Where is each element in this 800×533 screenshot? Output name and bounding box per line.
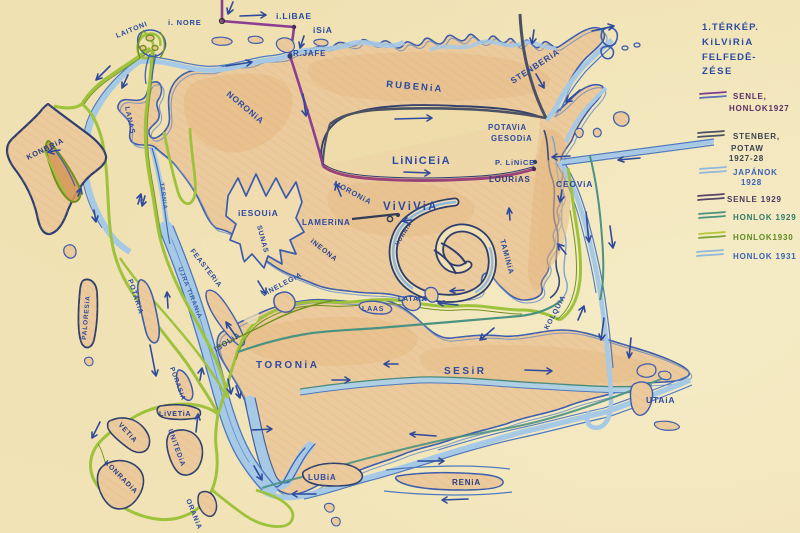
- svg-text:i.LiBAE: i.LiBAE: [276, 11, 312, 21]
- svg-text:SESiR: SESiR: [444, 366, 487, 377]
- svg-text:LATAiA: LATAiA: [398, 296, 427, 303]
- svg-text:ZÉSE: ZÉSE: [702, 66, 733, 77]
- svg-text:R.JAFE: R.JAFE: [293, 49, 326, 58]
- svg-text:POTAW: POTAW: [731, 144, 764, 153]
- svg-text:iESOUiA: iESOUiA: [238, 208, 279, 218]
- svg-text:HONLOK 1931: HONLOK 1931: [733, 252, 796, 261]
- svg-text:iSiA: iSiA: [313, 25, 333, 35]
- svg-text:P. LiNiCE: P. LiNiCE: [495, 158, 535, 167]
- svg-text:UTAiA: UTAiA: [646, 395, 675, 405]
- svg-text:FELFEDĒ-: FELFEDĒ-: [702, 52, 756, 63]
- svg-text:LOURiAS: LOURiAS: [489, 175, 531, 184]
- svg-text:TORONiA: TORONiA: [256, 360, 319, 371]
- svg-text:STENBER,: STENBER,: [733, 132, 780, 141]
- svg-text:1928: 1928: [741, 178, 762, 187]
- svg-text:LAAS: LAAS: [362, 306, 384, 313]
- svg-text:CEOViA: CEOViA: [556, 179, 593, 189]
- svg-text:HONLOK 1929: HONLOK 1929: [733, 213, 796, 222]
- svg-text:KiLViRiA: KiLViRiA: [702, 37, 754, 48]
- svg-text:LiVETiA: LiVETiA: [159, 411, 191, 418]
- svg-text:JAPÁNOK: JAPÁNOK: [733, 168, 778, 177]
- svg-text:HONLOK1930: HONLOK1930: [733, 233, 793, 242]
- svg-text:SENLE 1929: SENLE 1929: [727, 195, 782, 204]
- svg-text:LiNiCEiA: LiNiCEiA: [392, 155, 451, 167]
- svg-text:HONLOK1927: HONLOK1927: [729, 104, 789, 113]
- svg-text:RENiA: RENiA: [452, 478, 481, 487]
- svg-text:LAMERiNA: LAMERiNA: [302, 218, 351, 227]
- svg-text:1927-28: 1927-28: [729, 154, 764, 163]
- svg-text:ViViViA: ViViViA: [383, 201, 439, 213]
- svg-text:i. NORE: i. NORE: [168, 18, 202, 27]
- svg-text:SENLE,: SENLE,: [733, 92, 767, 101]
- svg-text:1.TÉRKÉP.: 1.TÉRKÉP.: [702, 22, 759, 33]
- svg-text:POTAViA: POTAViA: [488, 123, 527, 132]
- svg-text:GESODiA: GESODiA: [491, 134, 533, 143]
- svg-text:LUBiA: LUBiA: [308, 473, 336, 482]
